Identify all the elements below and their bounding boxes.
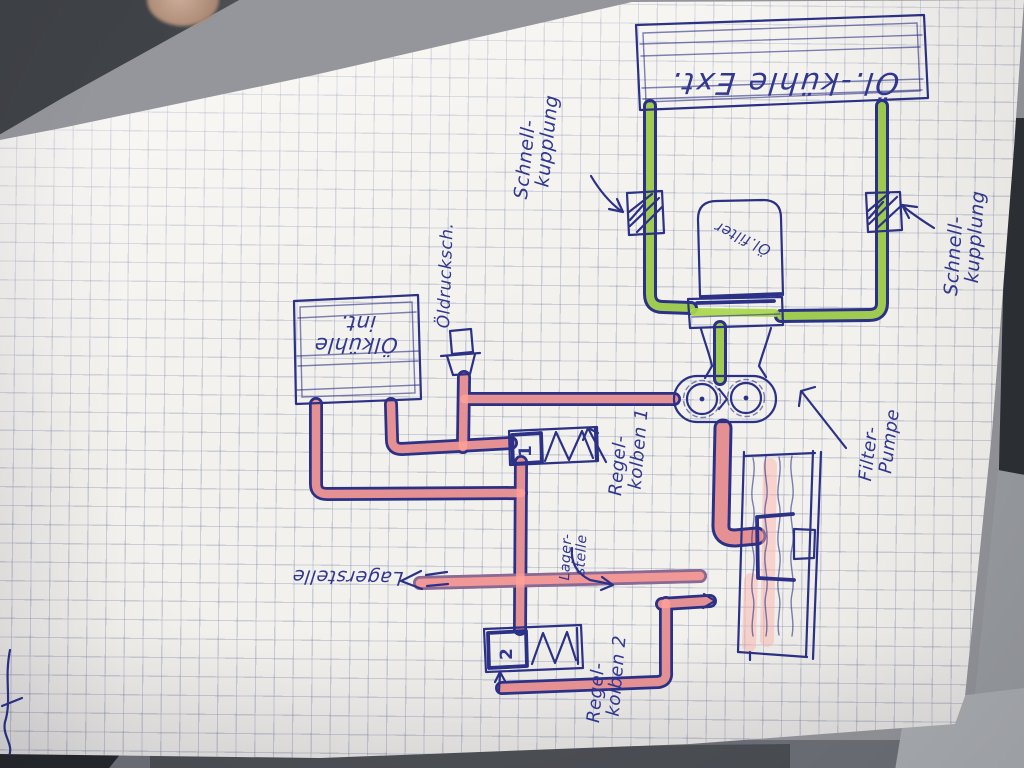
oil-pressure-switch-symbol: [441, 329, 480, 375]
stray-pen-scribble: [2, 650, 22, 756]
oil-pressure-switch-label: Öldrucksch.: [436, 222, 458, 328]
valve-2-number: 2: [499, 648, 517, 660]
quick-coupling-right-arrow: [902, 205, 934, 228]
control-piston-1-label: Regel- kolben 1: [607, 406, 652, 498]
control-piston-2-label: Regel- kolben 2: [585, 633, 630, 725]
quick-coupling-right-label: Schnell- kupplung: [942, 189, 989, 298]
oil-highlighter-pink: [316, 377, 770, 688]
filter-pump-arrow: [799, 387, 846, 448]
photo-of-hand-drawn-oil-circuit: Öl.-kühle Ext. Ölkühle int. Öl.filter Sc…: [0, 0, 1024, 768]
internal-oil-cooler-label: Ölkühle int.: [301, 312, 413, 356]
squared-paper-sheet: Öl.-kühle Ext. Ölkühle int. Öl.filter Sc…: [0, 0, 1024, 768]
bearing-points-main-label: Lagerstelle: [282, 565, 404, 587]
quick-coupling-left-arrow: [591, 176, 623, 212]
valve-1-number: 1: [518, 445, 536, 457]
external-oil-cooler-label: Öl.-kühle Ext.: [652, 32, 921, 98]
bearing-point-small-label: Lager- stelle: [558, 533, 590, 581]
